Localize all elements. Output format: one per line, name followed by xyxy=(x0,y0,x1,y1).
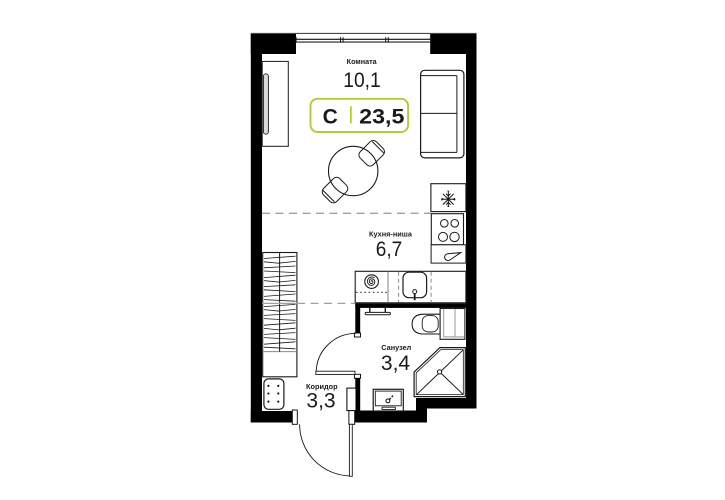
svg-text:3,3: 3,3 xyxy=(306,389,335,413)
svg-text:6,7: 6,7 xyxy=(376,237,403,261)
svg-text:С: С xyxy=(323,105,338,128)
svg-text:10,1: 10,1 xyxy=(343,68,381,92)
svg-text:3,4: 3,4 xyxy=(381,351,410,375)
svg-text:Комната: Комната xyxy=(347,59,377,66)
svg-text:23,5: 23,5 xyxy=(359,104,404,128)
